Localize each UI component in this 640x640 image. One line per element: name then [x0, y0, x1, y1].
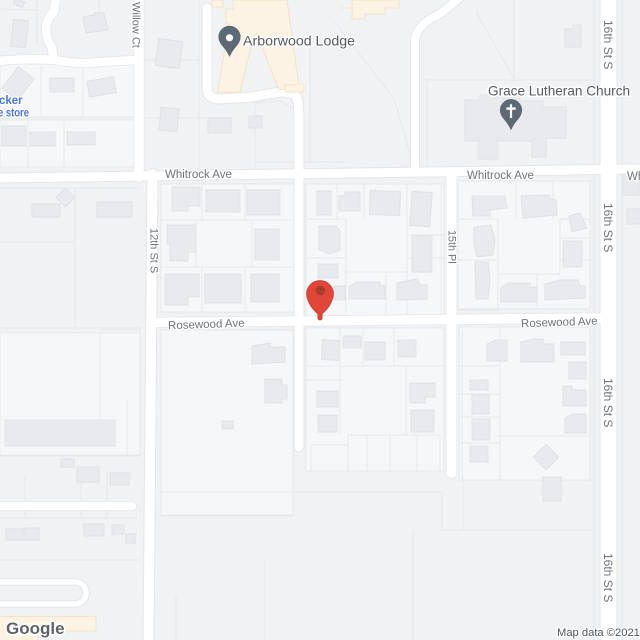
- svg-text:Whitrock Ave: Whitrock Ave: [165, 169, 232, 181]
- svg-text:Map data ©2021: Map data ©2021: [557, 627, 640, 639]
- svg-text:Willow Ct: Willow Ct: [130, 2, 142, 48]
- svg-text:e store: e store: [0, 106, 29, 120]
- svg-text:Wh: Wh: [627, 171, 640, 183]
- svg-text:Arborwood Lodge: Arborwood Lodge: [243, 34, 355, 50]
- svg-text:Whitrock Ave: Whitrock Ave: [467, 170, 534, 182]
- svg-text:16th St S: 16th St S: [601, 378, 615, 427]
- svg-text:12th St S: 12th St S: [148, 228, 160, 273]
- svg-text:16th St S: 16th St S: [601, 203, 615, 252]
- svg-text:16th St S: 16th St S: [601, 553, 615, 602]
- svg-text:Google: Google: [6, 619, 65, 638]
- svg-text:Grace Lutheran Church: Grace Lutheran Church: [488, 84, 630, 99]
- svg-text:15th Pl: 15th Pl: [446, 230, 458, 264]
- svg-text:16th St S: 16th St S: [601, 20, 615, 69]
